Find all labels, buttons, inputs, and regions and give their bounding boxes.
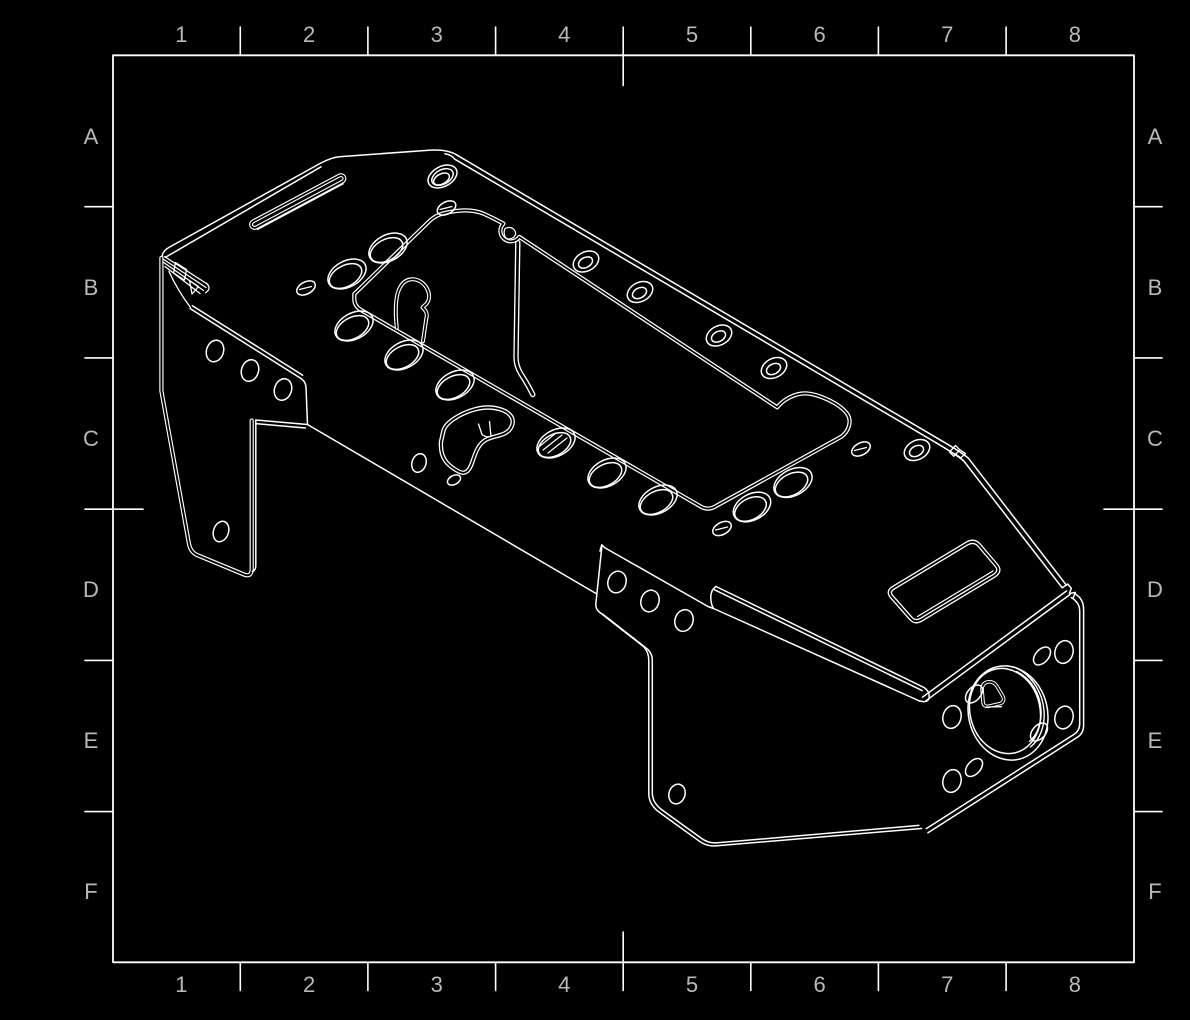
svg-text:B: B xyxy=(1148,275,1163,300)
svg-text:5: 5 xyxy=(686,22,698,47)
svg-text:8: 8 xyxy=(1069,972,1081,997)
svg-text:3: 3 xyxy=(431,22,443,47)
svg-text:6: 6 xyxy=(813,972,825,997)
svg-text:7: 7 xyxy=(941,972,953,997)
svg-text:4: 4 xyxy=(558,972,570,997)
svg-text:1: 1 xyxy=(175,22,187,47)
svg-text:F: F xyxy=(84,879,97,904)
svg-text:A: A xyxy=(1148,124,1163,149)
svg-text:E: E xyxy=(84,728,99,753)
svg-text:2: 2 xyxy=(303,22,315,47)
svg-text:F: F xyxy=(1148,879,1161,904)
svg-text:2: 2 xyxy=(303,972,315,997)
svg-text:7: 7 xyxy=(941,22,953,47)
svg-text:5: 5 xyxy=(686,972,698,997)
svg-text:8: 8 xyxy=(1069,22,1081,47)
svg-text:6: 6 xyxy=(813,22,825,47)
svg-text:4: 4 xyxy=(558,22,570,47)
svg-text:D: D xyxy=(1147,577,1163,602)
svg-text:1: 1 xyxy=(175,972,187,997)
svg-text:E: E xyxy=(1148,728,1163,753)
svg-text:A: A xyxy=(84,124,99,149)
svg-text:B: B xyxy=(84,275,99,300)
svg-text:C: C xyxy=(83,426,99,451)
svg-text:C: C xyxy=(1147,426,1163,451)
svg-text:3: 3 xyxy=(431,972,443,997)
svg-text:D: D xyxy=(83,577,99,602)
